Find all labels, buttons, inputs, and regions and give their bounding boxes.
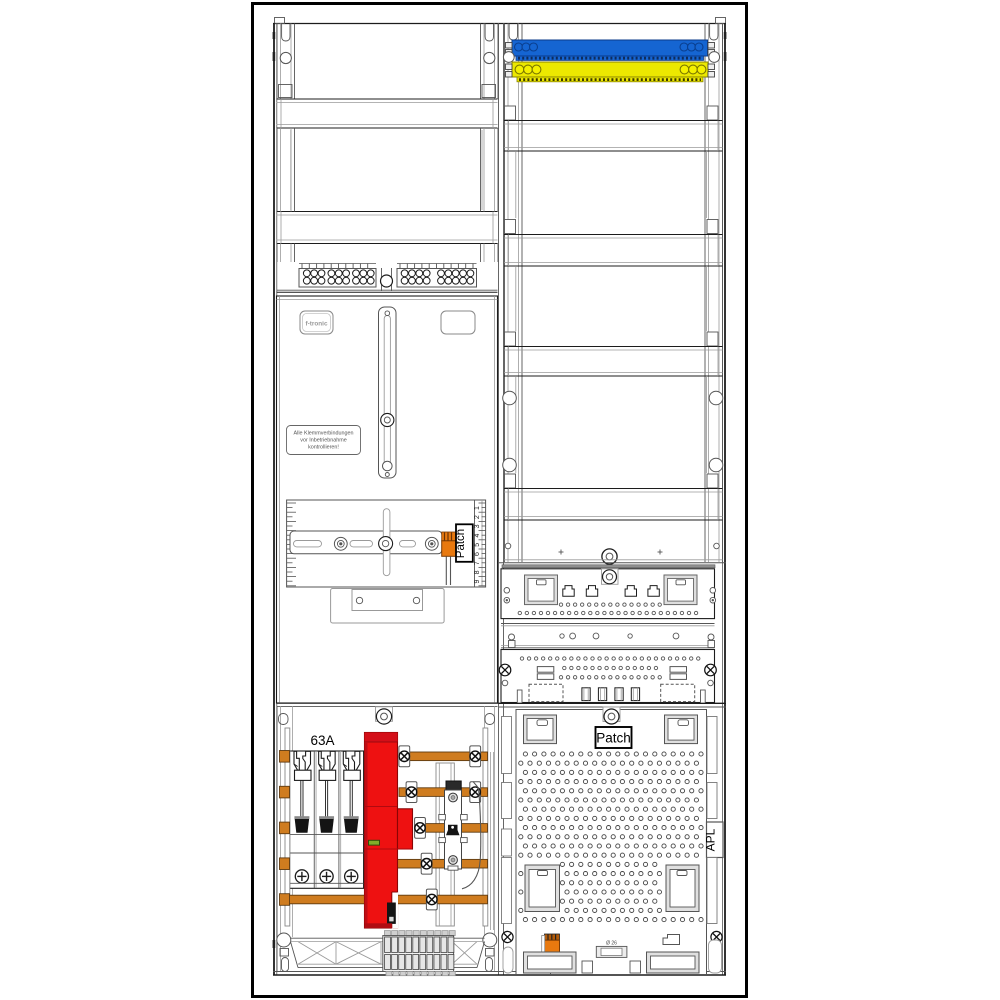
svg-text:Ø 26: Ø 26 <box>606 940 617 946</box>
svg-text:8: 8 <box>474 570 481 574</box>
svg-text:2: 2 <box>474 515 481 519</box>
svg-text:5: 5 <box>474 543 481 547</box>
svg-text:6: 6 <box>474 552 481 556</box>
svg-text:Patch: Patch <box>455 529 467 558</box>
svg-text:Patch: Patch <box>596 731 631 746</box>
svg-text:vor Inbetriebnahme: vor Inbetriebnahme <box>300 438 346 444</box>
svg-text:7: 7 <box>474 561 481 565</box>
svg-text:4: 4 <box>474 534 481 538</box>
svg-text:APL: APL <box>704 828 718 851</box>
svg-text:9: 9 <box>474 580 481 584</box>
svg-text:3: 3 <box>474 524 481 528</box>
svg-text:kontrollieren!: kontrollieren! <box>308 445 339 451</box>
svg-text:f-tronic: f-tronic <box>305 321 327 328</box>
svg-text:63A: 63A <box>310 733 334 748</box>
svg-text:Alle Klemmverbindungen: Alle Klemmverbindungen <box>294 431 354 437</box>
svg-text:1: 1 <box>474 506 481 510</box>
